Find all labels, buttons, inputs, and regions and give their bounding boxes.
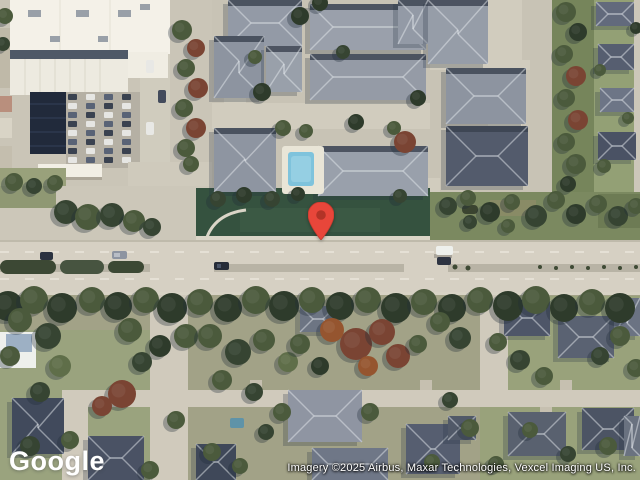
backyard-pool [230, 418, 244, 428]
main-road [0, 240, 640, 292]
dark-roof [30, 92, 66, 154]
map-viewport[interactable]: Google Imagery ©2025 Airbus, Maxar Techn… [0, 0, 640, 480]
google-logo[interactable]: Google [9, 446, 105, 477]
pin-inner-dot [316, 210, 326, 220]
map-attribution: Imagery ©2025 Airbus, Maxar Technologies… [287, 462, 636, 474]
satellite-imagery [0, 0, 640, 480]
swimming-pool [282, 146, 324, 194]
map-pin-icon[interactable] [308, 202, 334, 240]
pin-body[interactable] [308, 202, 334, 240]
